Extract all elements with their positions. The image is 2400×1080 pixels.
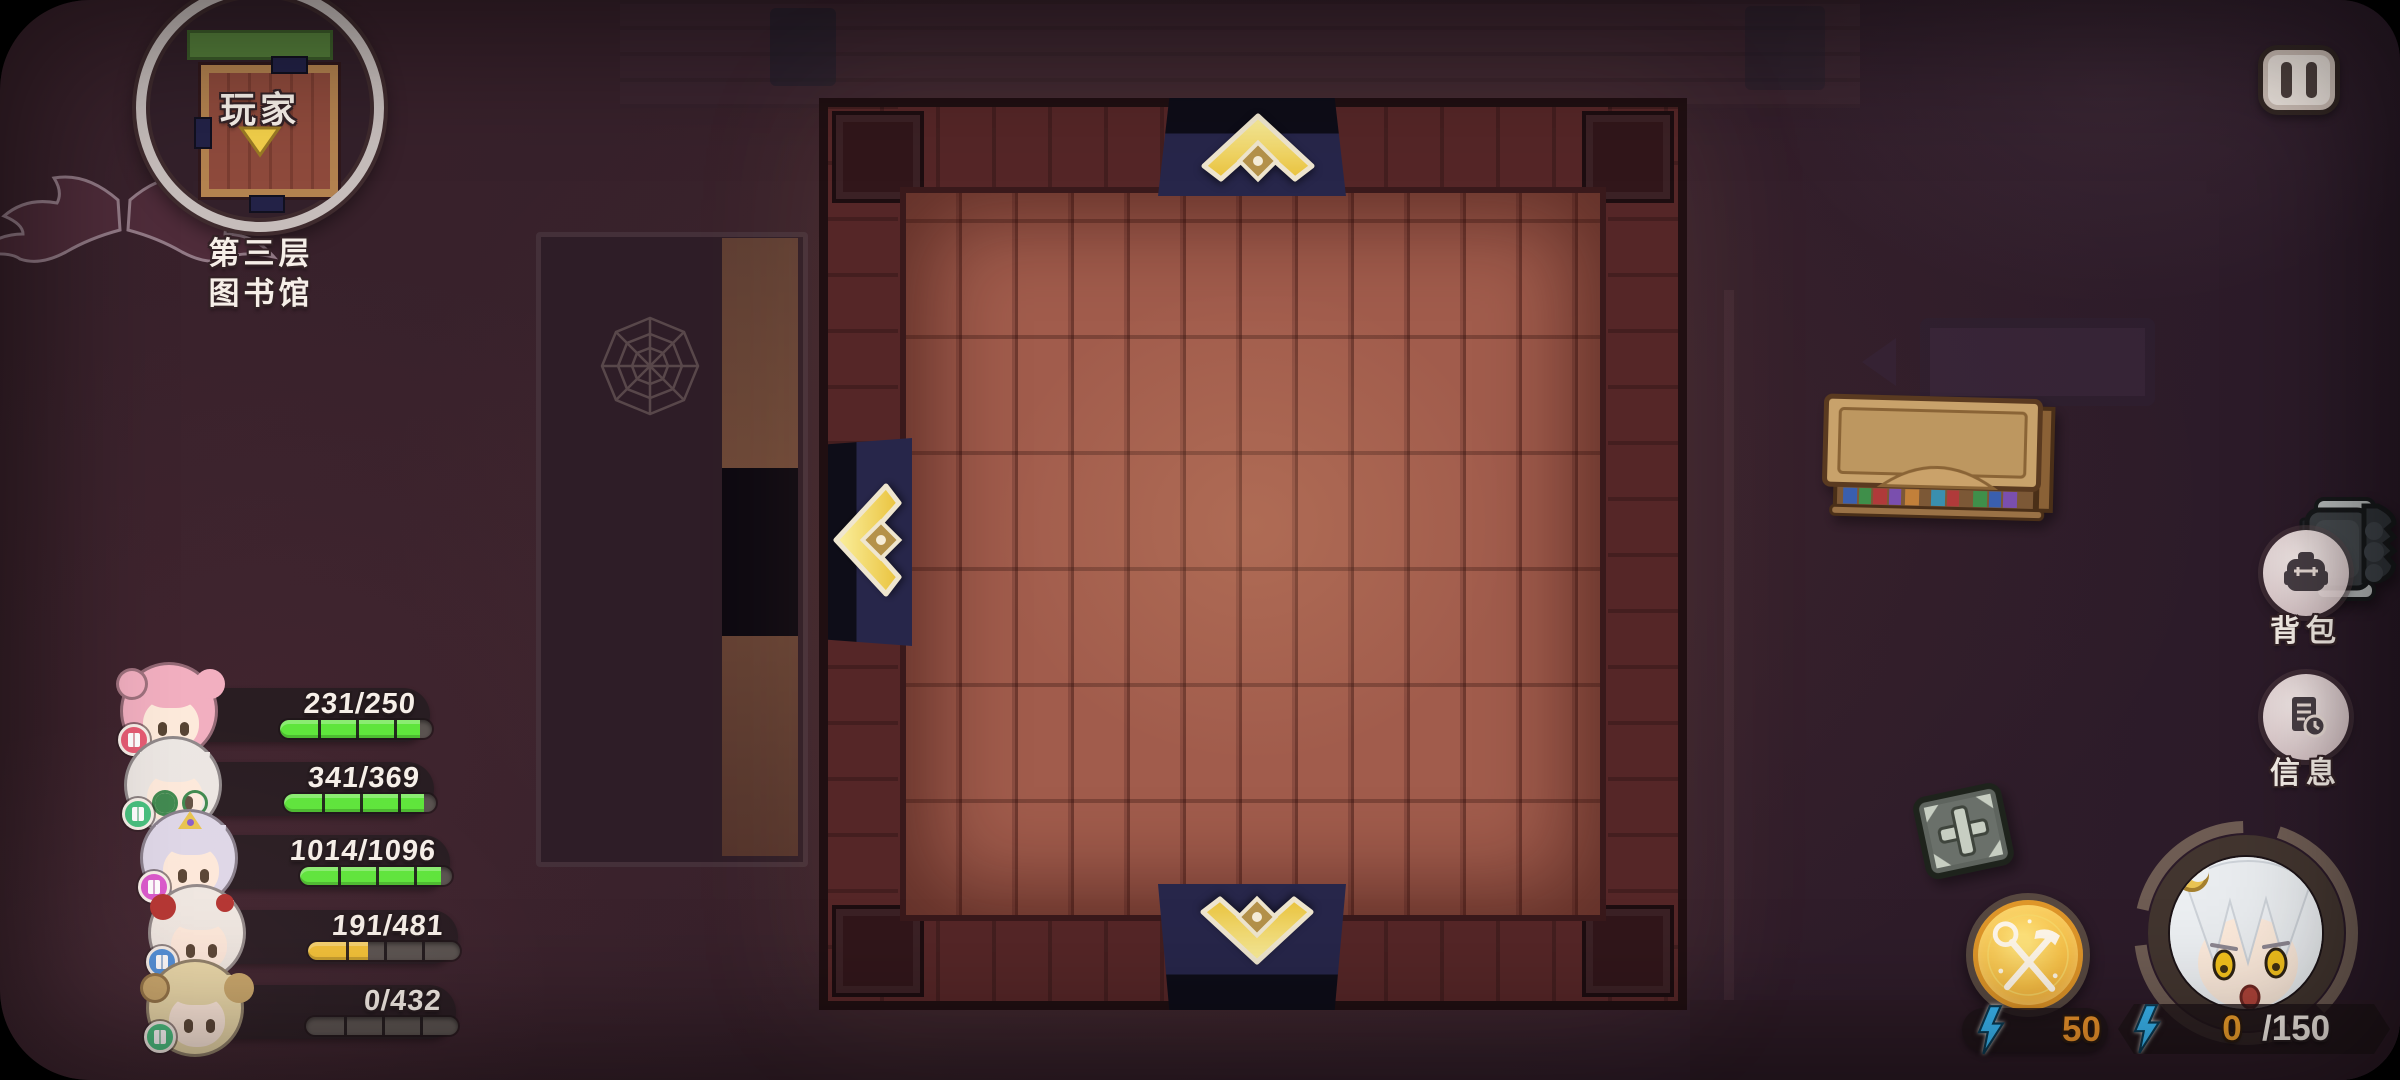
hp-bar [308, 942, 460, 960]
hp-bar [284, 794, 436, 812]
avatar-eye [178, 869, 187, 883]
door-hint [1745, 6, 1825, 90]
west-corridor-gap [722, 468, 798, 636]
hp-value: 191/481 [331, 910, 446, 943]
current-room [819, 98, 1687, 1010]
floor-label: 第三层 [106, 228, 416, 273]
pause-icon [2281, 62, 2292, 98]
pause-icon [2306, 62, 2317, 98]
avatar-eye [186, 944, 195, 958]
hp-bar [300, 867, 452, 885]
game-screen: 玩家 第三层 图书馆 231/250 [0, 0, 2400, 1080]
minimap-door [271, 56, 307, 74]
location-label: 图书馆 [106, 268, 416, 313]
minimap-door [249, 195, 285, 213]
pause-button[interactable] [2258, 45, 2340, 115]
lightning-icon [2128, 1003, 2166, 1055]
avatar-eye [206, 1019, 215, 1033]
unlit-sign-arrow [1862, 338, 1896, 386]
hp-bar-fill [280, 720, 420, 738]
exit-down-button[interactable] [1195, 890, 1319, 970]
energy-current: 0 [2210, 1009, 2254, 1049]
exit-up-button[interactable] [1196, 108, 1320, 188]
info-label: 信息 [2226, 748, 2386, 792]
wall-right [1608, 107, 1678, 1001]
character-avatar [144, 957, 248, 1061]
inventory-label: 背包 [2226, 606, 2386, 650]
door-hint [770, 8, 836, 86]
hp-value: 231/250 [303, 688, 418, 721]
minimap-view: 玩家 [146, 0, 374, 222]
hp-bar-fill [284, 794, 424, 812]
backpack-icon [2280, 547, 2332, 599]
hp-value: 1014/1096 [288, 835, 437, 868]
spider-web-icon [585, 312, 715, 420]
hp-bar-fill [308, 942, 368, 960]
hp-bar-fill [300, 867, 441, 885]
minimap[interactable]: 玩家 [136, 0, 384, 232]
mine-button[interactable] [1966, 893, 2090, 1017]
room-floor [900, 187, 1606, 921]
avatar-eye [200, 869, 209, 883]
avatar-eye [208, 944, 217, 958]
player-direction-icon [238, 124, 282, 158]
class-badge-icon [144, 1021, 176, 1053]
pickaxe-tools-icon [1980, 907, 2076, 1003]
avatar-eye [184, 1019, 193, 1033]
energy-banner: 0 /150 [2118, 1004, 2390, 1054]
hp-bar [306, 1017, 458, 1035]
info-document-icon [2280, 691, 2332, 743]
bookshelf-object[interactable] [1820, 393, 2057, 532]
inventory-button[interactable] [2263, 530, 2349, 616]
hp-value: 341/369 [307, 762, 422, 795]
party-member-5[interactable]: 0/432 [154, 985, 454, 1049]
minimap-rug [187, 30, 333, 60]
hp-bar [280, 720, 432, 738]
energy-max: /150 [2262, 1009, 2330, 1049]
exit-left-button[interactable] [828, 478, 908, 602]
mine-cost-pill: 50 [1962, 1008, 2108, 1052]
unlit-sign [1920, 318, 2155, 406]
hp-value: 0/432 [363, 985, 443, 1018]
lightning-icon [1972, 1004, 2010, 1056]
supply-crate-object[interactable] [1910, 779, 2019, 887]
mine-cost-value: 50 [2062, 1010, 2101, 1050]
wall-edge [1724, 290, 1734, 1010]
